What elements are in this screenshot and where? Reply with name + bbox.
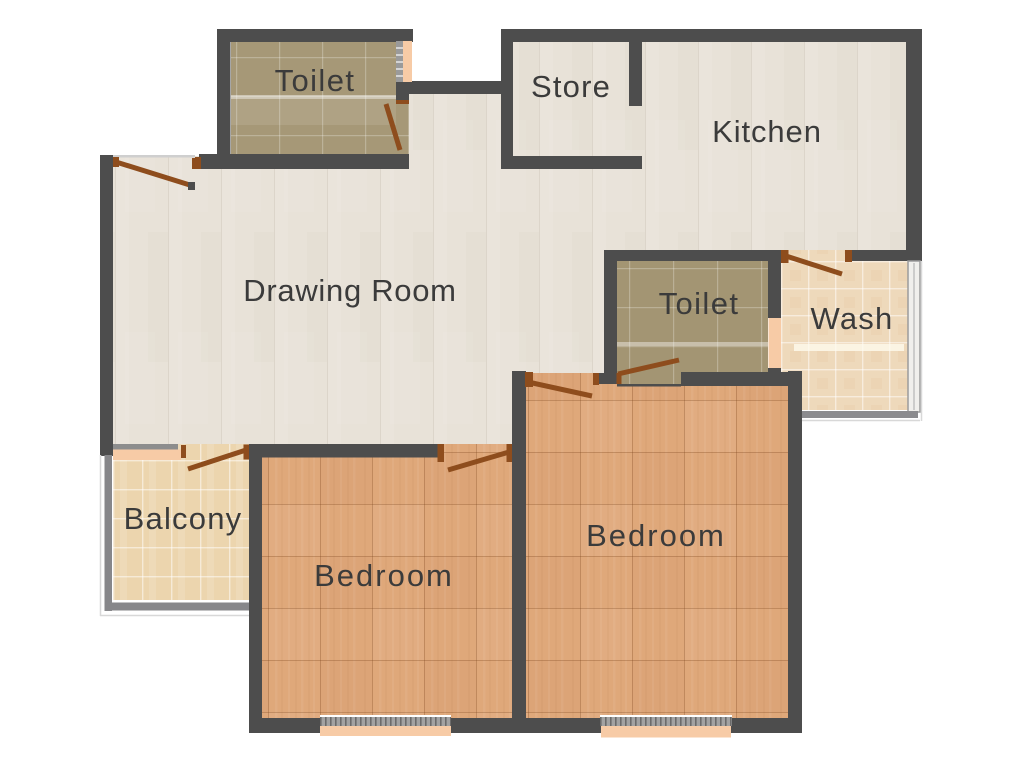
svg-text:Bedroom: Bedroom xyxy=(586,518,726,553)
svg-text:Bedroom: Bedroom xyxy=(314,558,454,593)
svg-text:Toilet: Toilet xyxy=(659,286,740,321)
svg-text:Kitchen: Kitchen xyxy=(712,114,822,149)
svg-text:Drawing Room: Drawing Room xyxy=(243,273,456,308)
svg-text:Store: Store xyxy=(531,69,611,104)
svg-text:Toilet: Toilet xyxy=(275,63,356,98)
svg-text:Wash: Wash xyxy=(811,301,894,336)
svg-text:Balcony: Balcony xyxy=(124,501,243,536)
